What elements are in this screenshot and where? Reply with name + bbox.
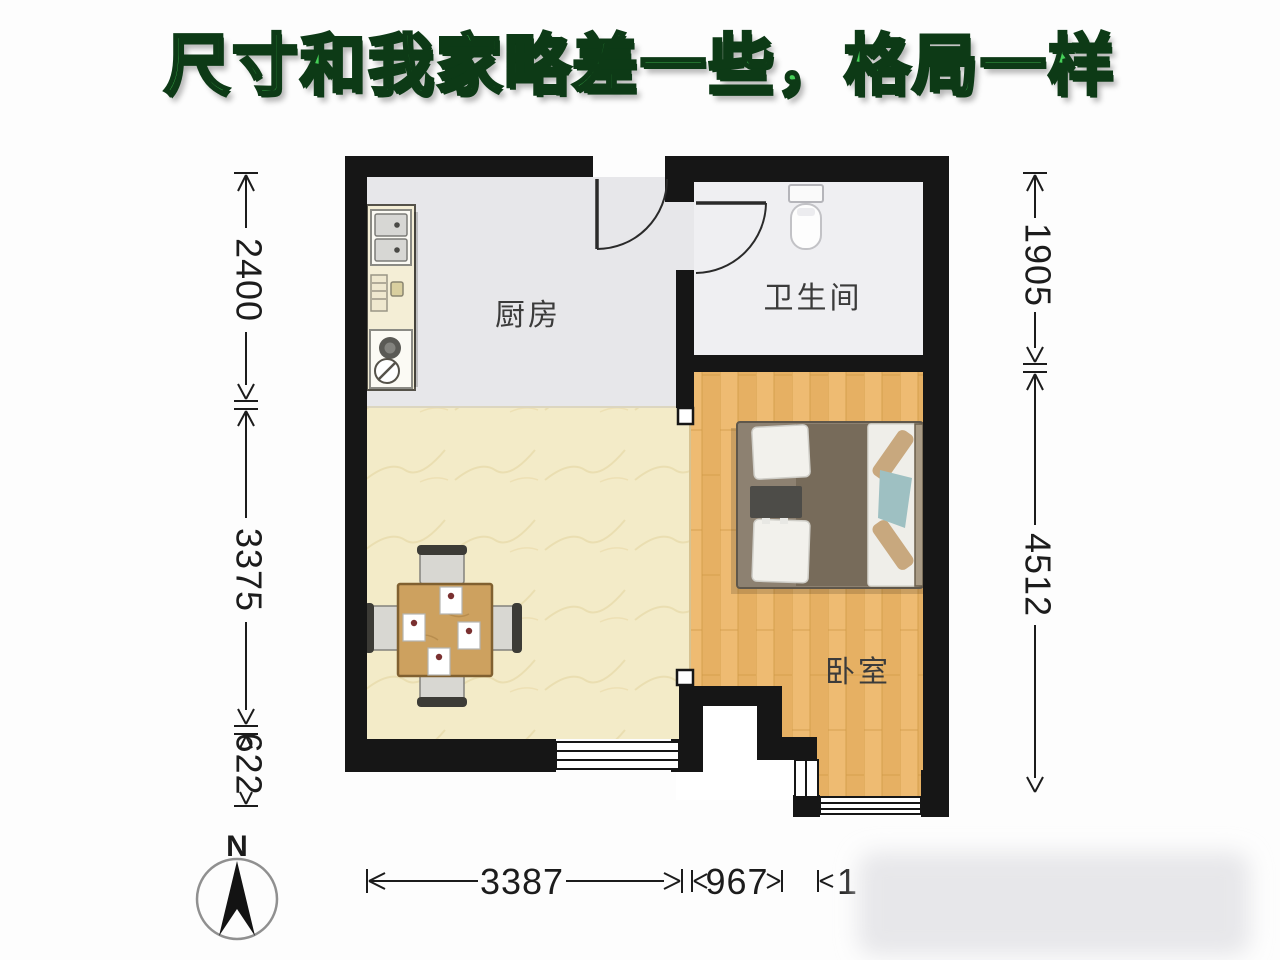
compass: N <box>197 830 277 939</box>
wall-bathroom-south <box>676 355 923 372</box>
bed-pillow <box>752 425 811 480</box>
dining-table <box>398 584 492 676</box>
kitchen-counter <box>367 205 418 390</box>
wall-end-cap <box>677 670 693 685</box>
svg-text:4512: 4512 <box>1017 533 1058 617</box>
wall-east-foot <box>921 770 949 817</box>
living-floor <box>367 407 690 739</box>
svg-text:967: 967 <box>705 861 768 902</box>
svg-text:3387: 3387 <box>480 861 564 902</box>
dimension-left-2400: 2400 <box>228 173 269 401</box>
dimension-left-3375: 3375 <box>228 409 269 726</box>
dining-chair-left <box>364 603 401 653</box>
dimension-bottom-967: 967 <box>692 861 782 902</box>
place-setting <box>440 587 462 614</box>
blurred-watermark-patch <box>858 852 1250 956</box>
wall-south-left <box>345 739 556 772</box>
svg-text:1: 1 <box>837 861 858 902</box>
wall-corner-block <box>793 795 820 817</box>
kitchen-stove <box>370 330 412 388</box>
toilet <box>789 185 823 249</box>
kitchen-sink <box>371 210 411 265</box>
svg-text:3375: 3375 <box>228 528 269 612</box>
kitchen-label: 厨房 <box>495 298 561 333</box>
bed <box>731 422 923 594</box>
window-bedroom-south <box>820 797 921 814</box>
window-living-south <box>556 742 679 769</box>
dimension-bottom-3387: 3387 <box>367 861 682 902</box>
wall-bathroom-west <box>676 270 694 408</box>
wall-west <box>345 156 367 772</box>
dimension-right-4512: 4512 <box>1017 372 1058 792</box>
wall-east <box>923 156 949 817</box>
wall-north-right <box>694 156 949 182</box>
place-setting <box>403 614 425 641</box>
bed-headboard <box>915 424 923 586</box>
place-setting <box>458 622 480 649</box>
screenshot-root: 尺寸和我家略差一些，格局一样 <box>0 0 1280 960</box>
bed-pillow <box>752 519 810 583</box>
bathroom-label: 卫生间 <box>764 281 863 316</box>
wall-entry-stub <box>665 156 694 202</box>
svg-text:622: 622 <box>228 732 269 795</box>
floor-plan: 厨房 卫生间 卧室 2400 3375 622 <box>0 0 1280 960</box>
wall-north-left <box>345 156 593 177</box>
bed-tray <box>750 486 802 518</box>
dining-chair-top <box>417 545 467 584</box>
window-bedroom-west <box>795 760 818 797</box>
dimension-right-1905: 1905 <box>1017 173 1058 364</box>
compass-needle-icon <box>219 861 255 936</box>
dimension-left-622: 622 <box>228 732 269 806</box>
dimension-bottom-partial: 1 <box>818 861 858 902</box>
svg-text:2400: 2400 <box>228 238 269 322</box>
svg-text:1905: 1905 <box>1017 223 1058 307</box>
place-setting <box>428 648 450 675</box>
wall-end-cap <box>678 408 693 424</box>
bedroom-label: 卧室 <box>825 655 891 690</box>
